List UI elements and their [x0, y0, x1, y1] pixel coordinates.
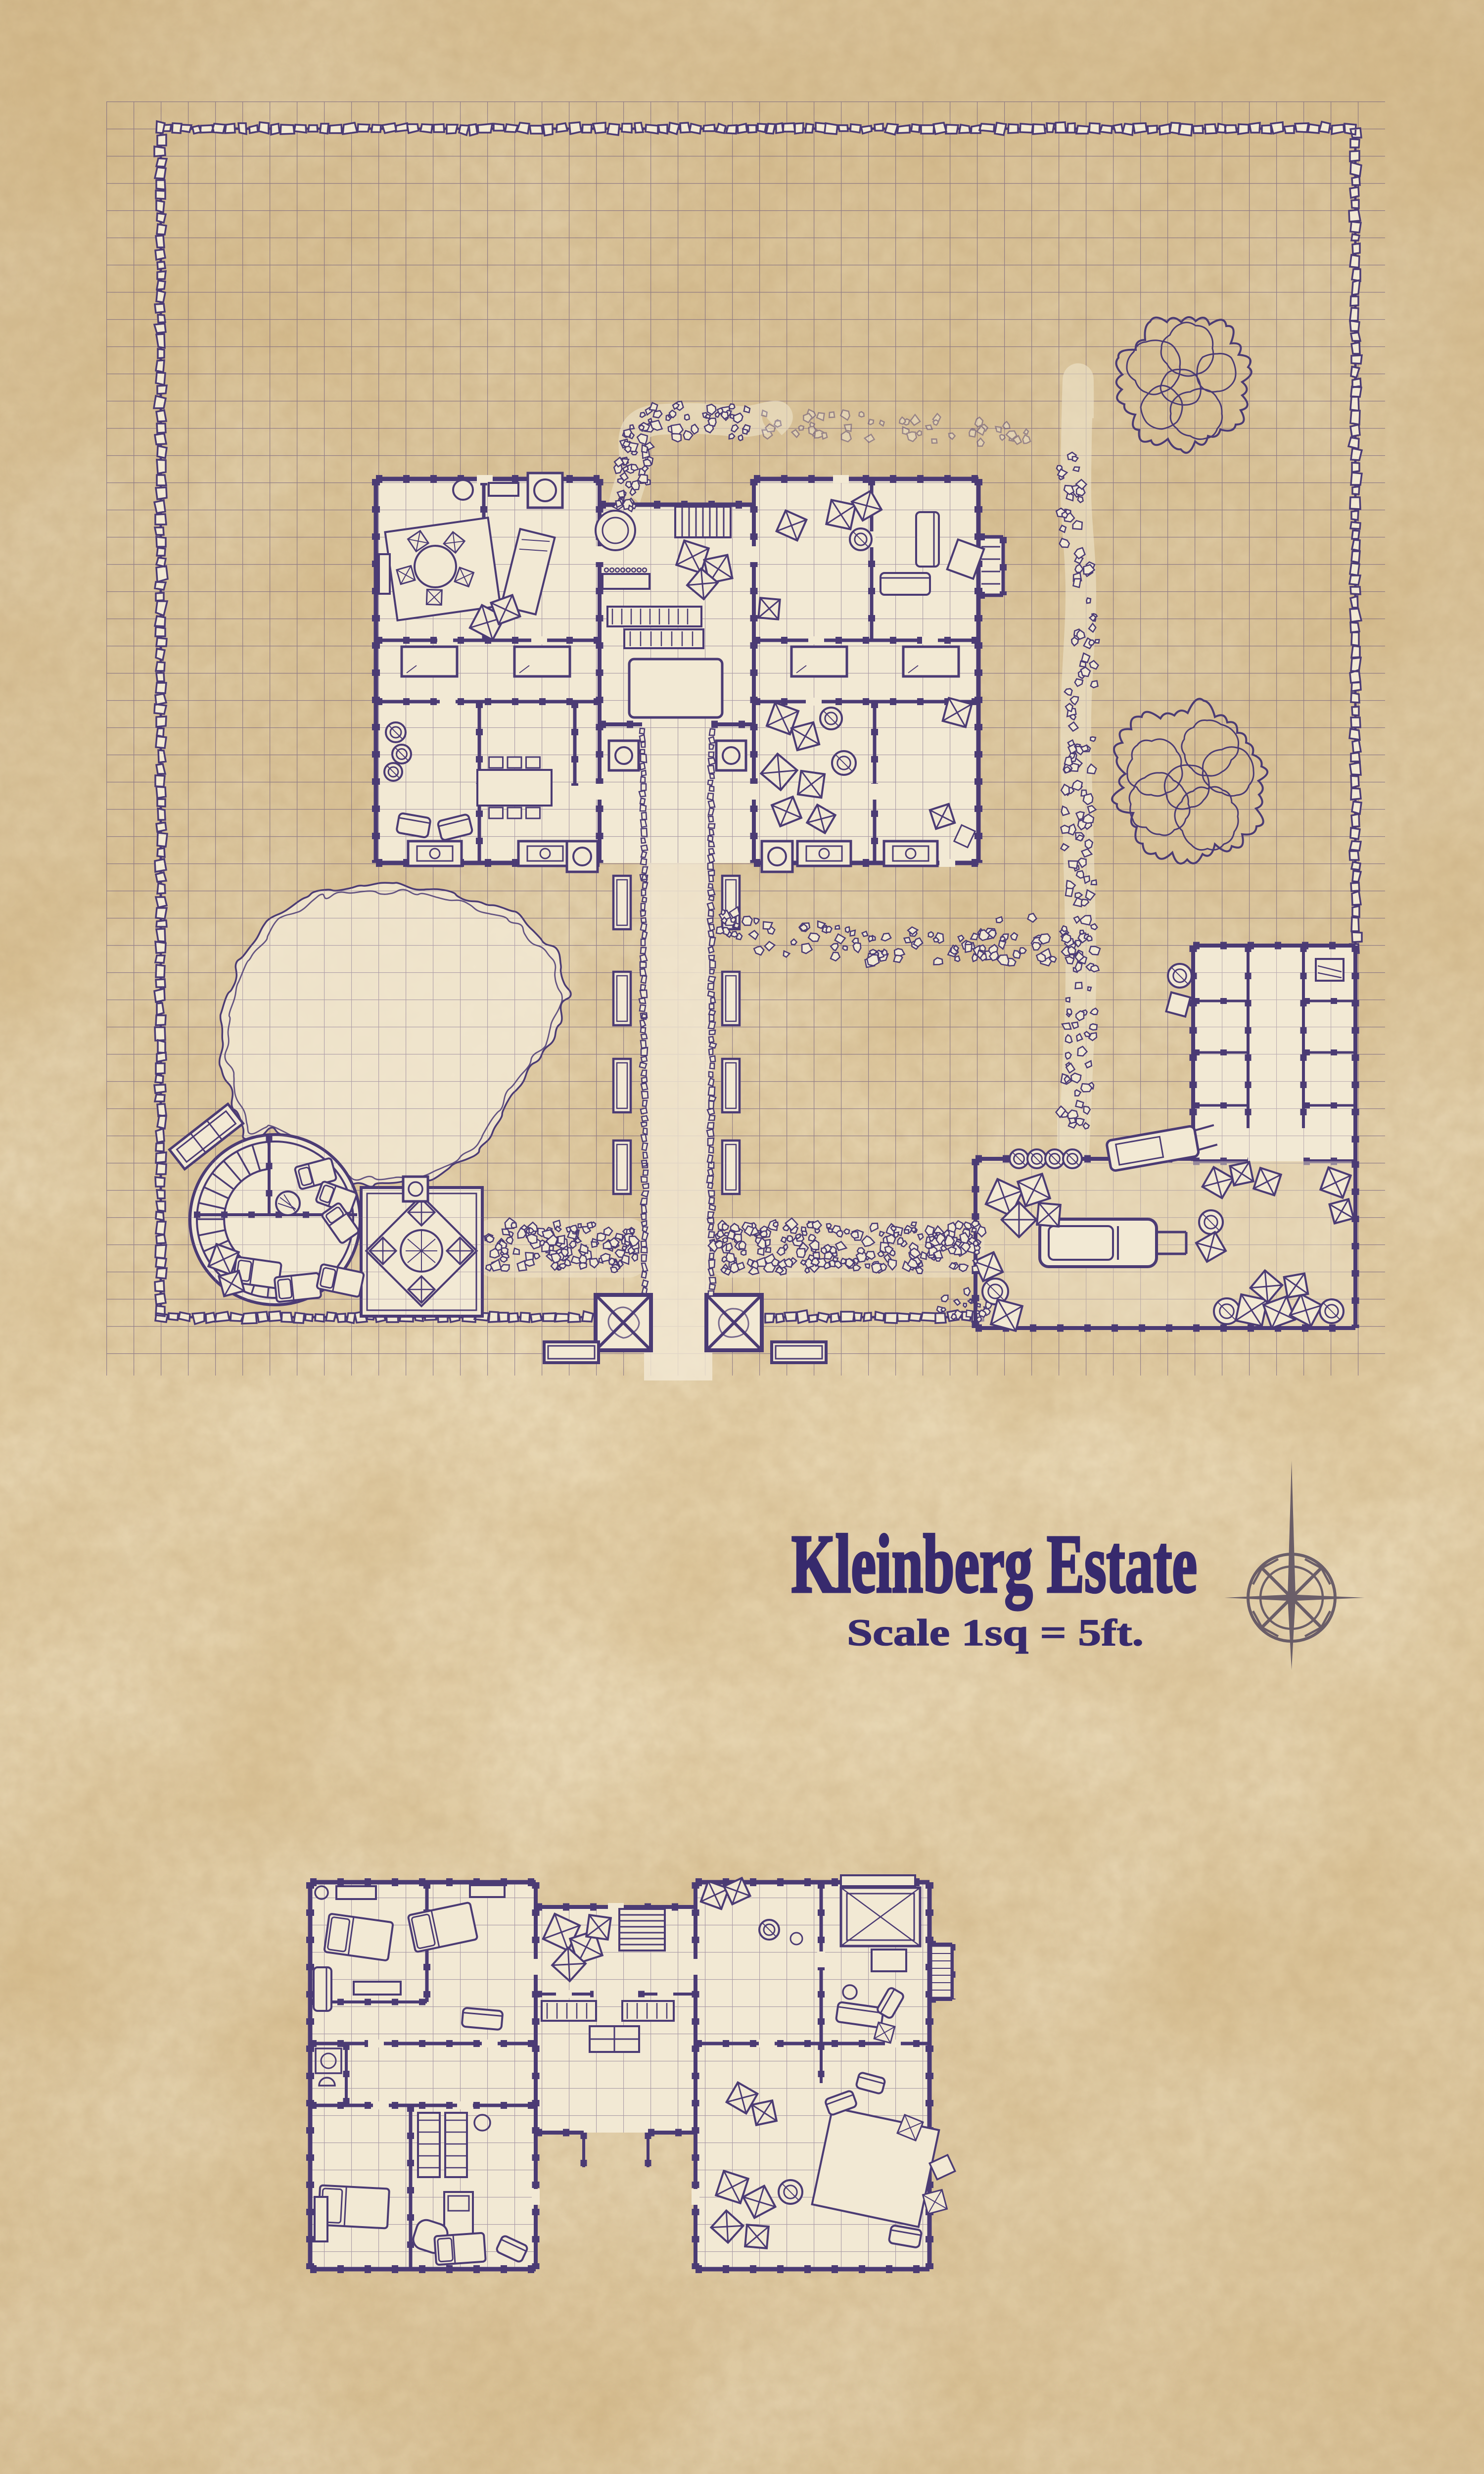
- svg-text:Kleinberg Estate: Kleinberg Estate: [791, 1518, 1197, 1610]
- svg-text:Scale 1sq = 5ft.: Scale 1sq = 5ft.: [847, 1612, 1144, 1654]
